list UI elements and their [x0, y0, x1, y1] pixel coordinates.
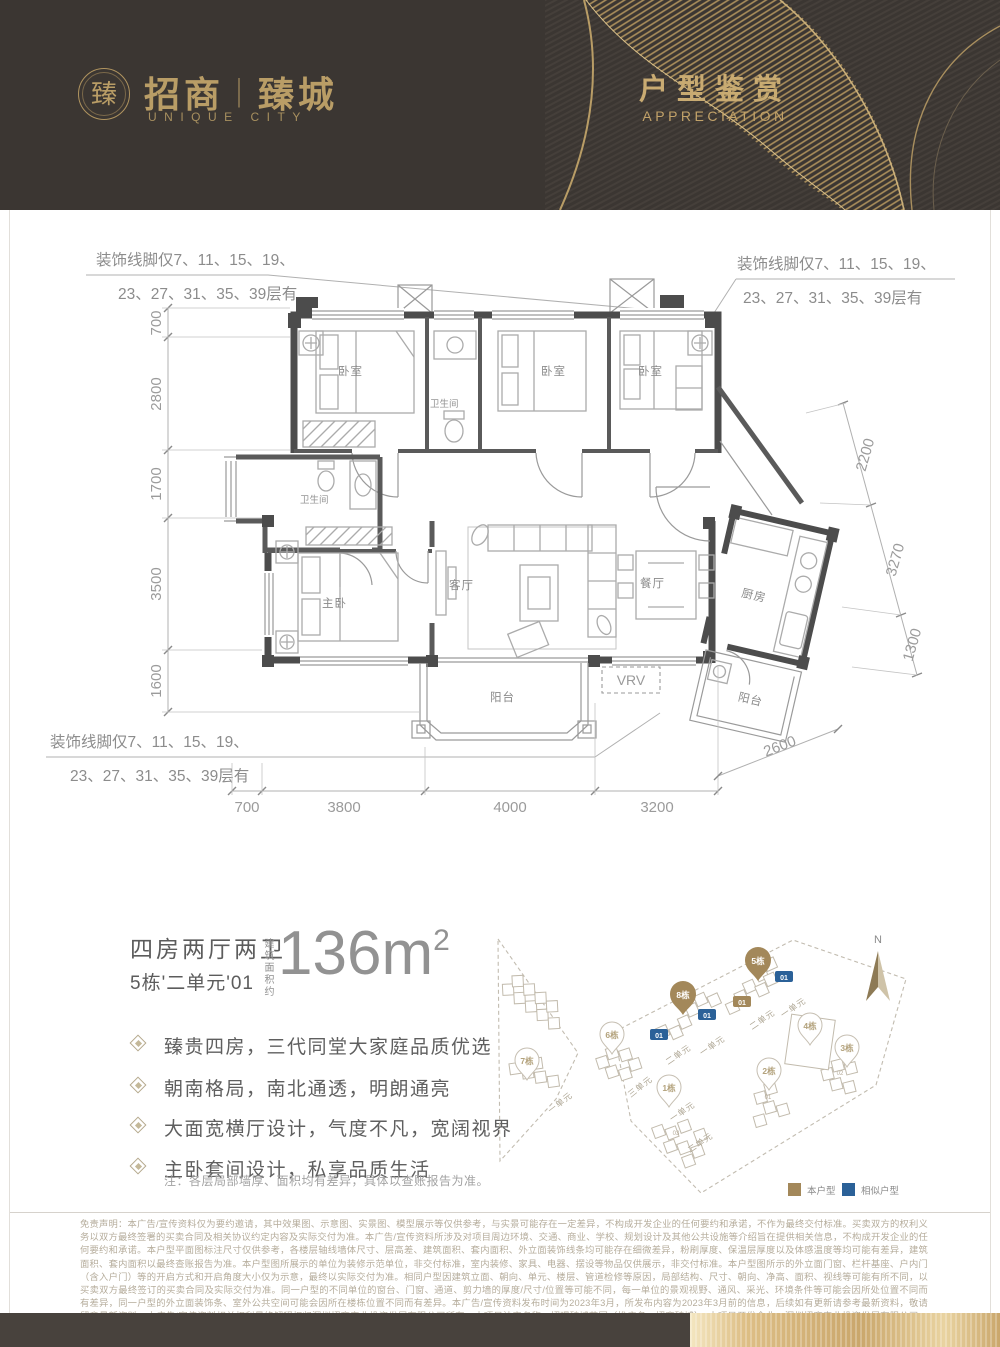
svg-text:23、27、31、35、39层有: 23、27、31、35、39层有 — [743, 289, 922, 307]
similar-unit-tag: 01 — [775, 971, 793, 982]
similar-unit-tag: 01 — [698, 1009, 716, 1020]
floor-plan: 装饰线脚仅7、11、15、19、 23、27、31、35、39层有 装饰线脚仅7… — [0, 235, 1000, 815]
svg-text:3200: 3200 — [640, 799, 673, 815]
svg-text:23、27、31、35、39层有: 23、27、31、35、39层有 — [70, 767, 249, 785]
dimension-balcony2: 2600 — [714, 725, 842, 780]
kitchen-wing: 厨房 阳台 — [682, 504, 840, 743]
dimension-right: 2200 3270 1300 — [806, 401, 925, 677]
brand-logo: 臻 招商｜臻城 UNIQUE CITY — [78, 58, 398, 148]
svg-text:1600: 1600 — [148, 664, 165, 697]
area-label: 建筑面积约 — [260, 938, 275, 1010]
divider-line — [10, 1212, 990, 1213]
site-pin-2: 2栋 — [757, 1058, 781, 1090]
svg-text:4栋: 4栋 — [803, 1021, 817, 1031]
svg-text:6栋: 6栋 — [605, 1030, 619, 1040]
decor-note-bottom-left: 装饰线脚仅7、11、15、19、 23、27、31、35、39层有 — [46, 713, 660, 785]
svg-text:1700: 1700 — [148, 467, 165, 500]
area-value: 136m2 — [278, 918, 450, 989]
svg-text:卧室: 卧室 — [338, 364, 363, 378]
svg-text:01: 01 — [655, 1033, 663, 1040]
building-cluster-7 — [502, 974, 560, 1032]
site-pin-1: 1栋 — [657, 1075, 681, 1107]
area-superscript: 2 — [433, 924, 450, 957]
svg-text:2800: 2800 — [148, 377, 165, 410]
svg-text:相似户型: 相似户型 — [861, 1185, 900, 1197]
brand-divider: ｜ — [224, 78, 258, 111]
svg-text:厨房: 厨房 — [740, 587, 767, 605]
dimension-bottom: 700 3800 4000 3200 — [228, 667, 722, 815]
map-legend: 本户型 相似户型 — [788, 1183, 900, 1197]
page-subtitle: APPRECIATION — [620, 108, 810, 124]
page-title: 户型鉴赏 — [620, 66, 810, 108]
site-pin-6: 6栋 — [600, 1022, 624, 1054]
svg-text:2栋: 2栋 — [762, 1066, 776, 1076]
svg-text:主卧: 主卧 — [322, 597, 347, 610]
svg-text:卧室: 卧室 — [541, 364, 566, 378]
svg-text:03: 03 — [673, 1131, 680, 1137]
svg-text:2200: 2200 — [853, 436, 879, 473]
vrv-unit: VRV — [602, 667, 660, 693]
svg-text:客厅: 客厅 — [449, 578, 474, 592]
svg-text:一单元: 一单元 — [546, 1090, 575, 1115]
similar-unit-tag: 01 — [650, 1029, 668, 1040]
decor-note-top-right: 装饰线脚仅7、11、15、19、 23、27、31、35、39层有 — [714, 255, 955, 313]
svg-text:1栋: 1栋 — [662, 1083, 676, 1093]
svg-text:二单元: 二单元 — [664, 1042, 693, 1066]
feature-item: 大面宽横厅设计，气度不凡，宽阔视界 — [132, 1114, 492, 1144]
svg-text:2600: 2600 — [761, 733, 798, 761]
svg-text:装饰线脚仅7、11、15、19、: 装饰线脚仅7、11、15、19、 — [96, 251, 295, 269]
svg-text:23、27、31、35、39层有: 23、27、31、35、39层有 — [118, 285, 297, 303]
main-balcony: 阳台 — [412, 663, 596, 740]
svg-text:二单元: 二单元 — [748, 1007, 777, 1031]
footer-band-gold — [690, 1313, 1000, 1347]
legend-current-swatch — [788, 1183, 801, 1196]
svg-text:餐厅: 餐厅 — [640, 576, 665, 590]
svg-text:装饰线脚仅7、11、15、19、: 装饰线脚仅7、11、15、19、 — [737, 255, 936, 273]
svg-text:8栋: 8栋 — [676, 990, 690, 1000]
svg-text:01: 01 — [765, 1095, 772, 1101]
svg-text:700: 700 — [148, 310, 165, 335]
building-cluster-6 — [594, 1040, 644, 1086]
header-banner: 臻 招商｜臻城 UNIQUE CITY 户型鉴赏 APPRECIATION — [0, 0, 1000, 210]
unit-note: 注：各层局部墙厚、面积均有差异，具体以查账报告为准。 — [164, 1172, 489, 1189]
svg-text:一单元: 一单元 — [698, 1033, 727, 1057]
brand-subtitle: UNIQUE CITY — [148, 110, 308, 124]
north-arrow-icon: N — [866, 934, 890, 1001]
svg-text:02: 02 — [837, 1071, 844, 1077]
svg-text:N: N — [874, 934, 882, 946]
svg-text:4000: 4000 — [493, 799, 526, 815]
brand-emblem-icon: 臻 — [78, 68, 130, 120]
svg-text:1300: 1300 — [900, 626, 926, 663]
unit-number: 5栋'二单元'01 — [130, 968, 254, 995]
svg-text:3500: 3500 — [148, 567, 165, 600]
footer-band-dark — [0, 1313, 690, 1347]
svg-text:卫生间: 卫生间 — [300, 494, 329, 506]
feature-item: 臻贵四房，三代同堂大家庭品质优选 — [132, 1032, 492, 1062]
svg-text:本户型: 本户型 — [807, 1185, 836, 1197]
legend-similar-swatch — [842, 1183, 855, 1196]
feature-item: 朝南格局，南北通透，明朗通亮 — [132, 1074, 492, 1104]
svg-text:01: 01 — [703, 1013, 711, 1020]
site-map: N — [470, 925, 990, 1210]
svg-text:3270: 3270 — [883, 541, 909, 578]
svg-text:01: 01 — [738, 1000, 746, 1007]
svg-text:阳台: 阳台 — [490, 690, 515, 704]
decor-note-top-left: 装饰线脚仅7、11、15、19、 23、27、31、35、39层有 — [86, 251, 640, 309]
flyer-page: { "header": { "emblem_char": "臻", "brand… — [0, 0, 1000, 1347]
svg-text:装饰线脚仅7、11、15、19、: 装饰线脚仅7、11、15、19、 — [50, 733, 249, 751]
site-parcel-left — [498, 939, 578, 1161]
svg-text:VRV: VRV — [617, 672, 646, 688]
svg-text:3栋: 3栋 — [840, 1043, 854, 1053]
svg-text:卧室: 卧室 — [638, 364, 663, 378]
svg-text:阳台: 阳台 — [737, 690, 765, 709]
svg-text:700: 700 — [234, 799, 259, 815]
svg-text:卫生间: 卫生间 — [430, 398, 459, 410]
svg-text:7栋: 7栋 — [520, 1056, 534, 1066]
svg-text:3800: 3800 — [327, 799, 360, 815]
walls — [224, 308, 802, 667]
svg-text:5栋: 5栋 — [751, 956, 765, 966]
svg-text:01: 01 — [780, 975, 788, 982]
current-unit-tag: 01 — [733, 996, 751, 1007]
